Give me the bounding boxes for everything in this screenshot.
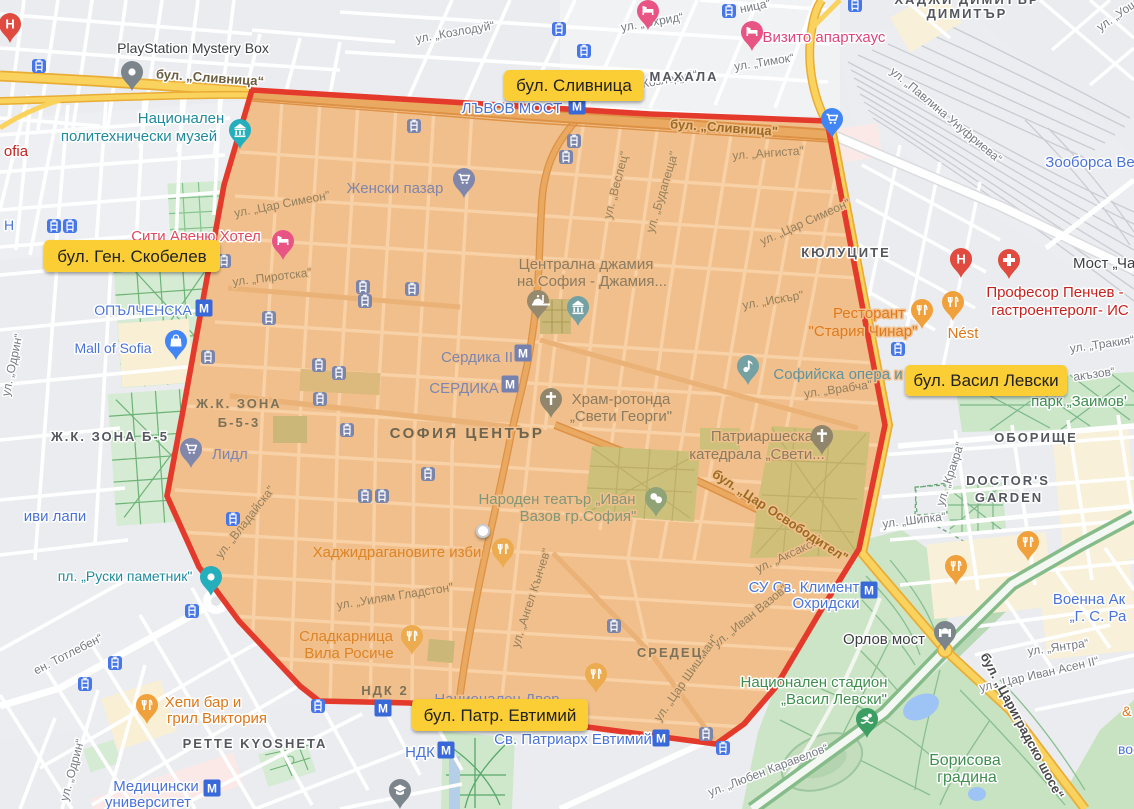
svg-text:Хаджидрагановите изби: Хаджидрагановите изби (313, 544, 482, 561)
svg-text:Хепи бар и: Хепи бар и (165, 694, 242, 711)
svg-text:Национален стадион: Национален стадион (741, 674, 888, 691)
svg-text:Национален: Национален (138, 110, 225, 127)
svg-text:Медицински: Медицински (113, 778, 199, 795)
svg-text:СОФИЯ ЦЕНТЪР: СОФИЯ ЦЕНТЪР (390, 425, 545, 442)
svg-text:политехнически музей: политехнически музей (61, 128, 217, 145)
svg-text:Професор Пенчев -: Професор Пенчев - (986, 284, 1123, 301)
svg-text:НДК 2: НДК 2 (361, 683, 408, 698)
svg-text:градина: градина (937, 769, 997, 786)
svg-text:„Васил Левски": „Васил Левски" (781, 691, 887, 708)
svg-text:Храм-ротонда: Храм-ротонда (572, 391, 671, 408)
svg-text:Патриаршеска: Патриаршеска (711, 428, 814, 445)
svg-text:ОПЪЛЧЕНСКА: ОПЪЛЧЕНСКА (94, 302, 192, 318)
svg-text:бул. Ген. Скобелев: бул. Ген. Скобелев (57, 247, 206, 266)
svg-text:Военна Ак: Военна Ак (1053, 591, 1126, 608)
svg-text:иви лапи: иви лапи (24, 508, 87, 525)
svg-text:Борисова: Борисова (929, 752, 1001, 769)
svg-text:Б-5-3: Б-5-3 (218, 415, 260, 430)
svg-text:ЛЪВОВ МОСТ: ЛЪВОВ МОСТ (462, 100, 563, 117)
svg-text:Народен театър „Иван: Народен театър „Иван (478, 491, 635, 508)
svg-text:на София - Джамия...: на София - Джамия... (517, 273, 667, 290)
svg-text:МАХАЛА: МАХАЛА (650, 69, 719, 84)
svg-text:„Г. С. Ра: „Г. С. Ра (1070, 608, 1127, 625)
svg-text:СРЕДЕЦ: СРЕДЕЦ (637, 645, 703, 660)
svg-text:пл. „Руски паметник": пл. „Руски паметник" (58, 568, 193, 584)
svg-text:Лидл: Лидл (212, 446, 248, 463)
svg-text:Nést: Nést (948, 325, 980, 342)
svg-text:PETTE KYOSHETA: PETTE KYOSHETA (183, 736, 328, 751)
svg-text:Сладкарница: Сладкарница (299, 628, 394, 645)
svg-text:Централна джамия: Централна джамия (519, 256, 654, 273)
svg-text:НДК: НДК (405, 744, 435, 761)
svg-text:ofia: ofia (4, 143, 29, 160)
svg-text:катедрала „Свети...: катедрала „Свети... (689, 446, 825, 463)
svg-text:Ж.К. ЗОНА Б-5: Ж.К. ЗОНА Б-5 (50, 429, 169, 444)
svg-text:Охридски: Охридски (793, 595, 860, 612)
svg-text:Софийска опера и: Софийска опера и (773, 366, 902, 383)
svg-text:бул. Сливница: бул. Сливница (516, 76, 632, 95)
svg-text:университет: университет (105, 794, 191, 809)
svg-text:Ресторант: Ресторант (833, 305, 905, 322)
svg-text:„Свети Георги": „Свети Георги" (570, 408, 672, 425)
svg-text:"Стария Чинар": "Стария Чинар" (809, 323, 918, 340)
svg-text:грил Виктория: грил Виктория (167, 710, 267, 727)
svg-text:Вила Росиче: Вила Росиче (304, 645, 393, 662)
svg-text:Визито апартхаус: Визито апартхаус (763, 29, 886, 46)
svg-text:Сердика II: Сердика II (441, 349, 513, 366)
svg-text:ОБОРИЩЕ: ОБОРИЩЕ (994, 430, 1078, 445)
svg-text:бул. Васил Левски: бул. Васил Левски (913, 371, 1058, 390)
svg-text:Ж.К. ЗОНА: Ж.К. ЗОНА (195, 396, 281, 411)
svg-text:Зооборса Ве: Зооборса Ве (1045, 154, 1134, 171)
svg-text:Мост „Ча: Мост „Ча (1073, 255, 1134, 272)
svg-text:Св. Патриарх Евтимий: Св. Патриарх Евтимий (494, 731, 652, 748)
svg-text:СЕРДИКА: СЕРДИКА (429, 380, 499, 397)
svg-text:КЮЛУЦИТЕ: КЮЛУЦИТЕ (801, 245, 891, 260)
svg-text:вое: вое (1118, 741, 1134, 757)
svg-text:ДИМИТЪР: ДИМИТЪР (927, 6, 1008, 21)
svg-text:гастроентеролг- ИС: гастроентеролг- ИС (991, 302, 1129, 319)
svg-text:Женски пазар: Женски пазар (347, 180, 444, 197)
svg-text:Н: Н (4, 217, 14, 233)
svg-text:DOCTOR'S: DOCTOR'S (966, 473, 1050, 488)
svg-text:&: & (1122, 703, 1132, 719)
svg-text:GARDEN: GARDEN (975, 490, 1043, 505)
svg-text:бул. Патр. Евтимий: бул. Патр. Евтимий (424, 706, 577, 725)
svg-text:Вазов гр.София": Вазов гр.София" (520, 508, 637, 525)
svg-text:Mall of Sofia: Mall of Sofia (74, 340, 151, 356)
svg-text:Орлов мост: Орлов мост (843, 631, 925, 648)
svg-text:PlayStation Mystery Box: PlayStation Mystery Box (117, 40, 269, 56)
